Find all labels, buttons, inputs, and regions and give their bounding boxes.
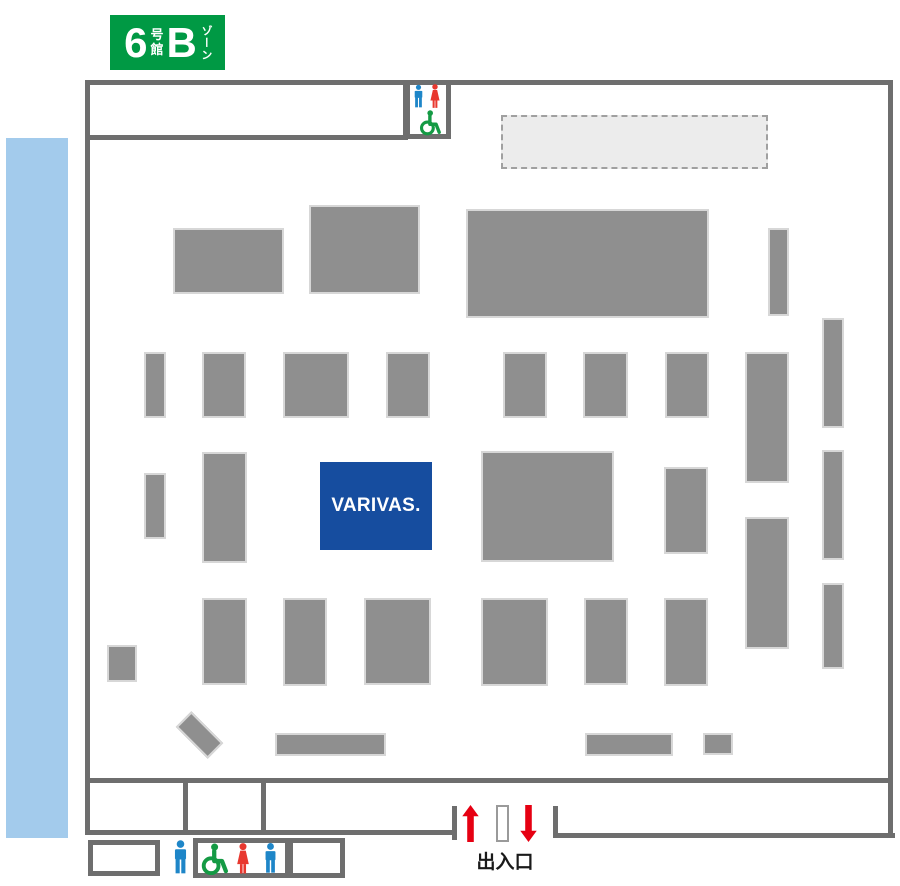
hall-suffix-bottom: 館	[151, 43, 164, 58]
hall-number-text: 6	[124, 22, 147, 64]
reserved-area-dashed	[501, 115, 768, 169]
hall-suffix-top: 号	[151, 28, 164, 43]
corridor-right-wall	[888, 783, 893, 838]
entrance-left-wall	[452, 806, 457, 840]
room-restroom-a	[88, 840, 160, 876]
room-top-left	[85, 80, 408, 140]
varivas-logo-text: VARIVAS.	[331, 495, 420, 517]
entrance-label: 出入口	[450, 847, 560, 874]
wheelchair-icon	[417, 110, 444, 136]
floor-map: VARIVAS. 6 号 館 B ゾーン 出入口	[0, 0, 900, 886]
woman-icon	[428, 84, 442, 109]
room-bottom-2	[183, 778, 266, 835]
wheelchair-icon	[201, 843, 229, 876]
arrow-down-icon	[520, 805, 537, 842]
zone-letter-text: B	[167, 22, 197, 64]
room-bottom-1	[85, 778, 188, 835]
woman-icon	[234, 843, 252, 875]
floor-outline	[85, 80, 893, 783]
man-icon	[412, 84, 425, 109]
varivas-booth: VARIVAS.	[320, 462, 432, 550]
entrance-pillar	[496, 805, 509, 842]
room-bottom-3	[261, 778, 457, 835]
man-icon	[171, 840, 190, 875]
man-icon	[262, 842, 279, 875]
room-restroom-b	[288, 838, 345, 878]
arrow-up-icon	[462, 805, 479, 842]
side-aisle-strip	[6, 138, 68, 838]
hall-zone-badge: 6 号 館 B ゾーン	[110, 15, 225, 70]
hall-suffix-text: 号 館	[151, 28, 164, 58]
zone-suffix-text: ゾーン	[200, 25, 211, 61]
corridor-bottom-wall	[553, 833, 895, 838]
